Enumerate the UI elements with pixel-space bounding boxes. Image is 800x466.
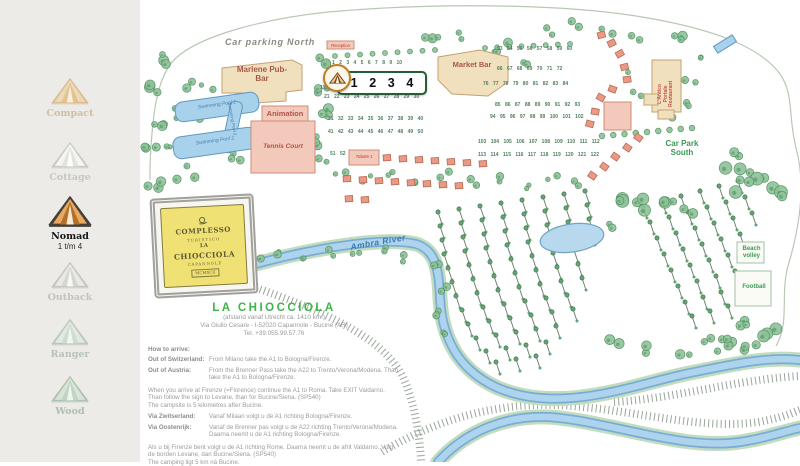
sidebar-item-nomad[interactable]: Nomad1 t/m 4 [0,194,140,251]
campsite-map-page: CompactCottageNomad1 t/m 4OutbackRangerW… [0,0,800,462]
sidebar-item-label: Compact [0,108,140,119]
directions-english-note: The campsite is 5 kilometres after Bucin… [148,402,400,410]
address-line: Via Giulio Cesare - I-52020 Capannole - … [148,322,400,330]
directions-english: Out of Switzerland:From Milano take the … [148,356,400,382]
swimming-pool-1 [174,91,260,122]
entrance-sign: COMPLESSO TURISTICO LA CHIOCCIOLA CAPANN… [149,193,258,298]
building-market-bar [438,50,508,96]
pitch-number-4: 4 [406,76,413,90]
directions-dutch-note: The camping ligt 5 km ná Bucine. [148,459,400,466]
how-to-arrive-heading: How to arrive: [148,346,400,353]
football-field [735,271,771,306]
sidebar-item-label: Outback [0,292,140,303]
tent-icon [50,260,90,291]
tent-marker-icon [329,72,346,84]
sidebar-item-wood[interactable]: Wood [0,374,140,417]
directions-dutch: Via Zwitserland:Vanaf Milaan volgt u de … [148,413,400,439]
distance-line: (afstand vanaf Utrecht ca. 1410 km.) [148,314,400,322]
tennis-court-area [251,121,315,173]
sidebar-item-compact[interactable]: Compact [0,76,140,119]
campsite-title: LA CHIOCCIOLA [148,302,400,314]
sidebar-item-sub: 1 t/m 4 [0,242,140,251]
building-sanitary [604,102,631,130]
tent-icon [50,140,90,171]
info-block: LA CHIOCCIOLA (afstand vanaf Utrecht ca.… [148,302,400,466]
tent-icon [47,194,93,230]
pitch-number-2: 2 [369,76,376,90]
tent-icon [50,374,90,405]
sidebar-item-label: Wood [0,406,140,417]
sidebar-item-label: Cottage [0,172,140,183]
direction-row: Via Zwitserland:Vanaf Milaan volgt u de … [148,413,400,421]
directions-english-para: When you arrive at Firenze (=Florence) c… [148,387,400,402]
building-toilette-1 [349,150,379,165]
sidebar-item-cottage[interactable]: Cottage [0,140,140,183]
sign-line-complesso: COMPLESSO [175,225,231,237]
sign-line-year: MCMXCII [191,268,220,277]
entrance-sign-plaque: COMPLESSO TURISTICO LA CHIOCCIOLA CAPANN… [160,204,248,288]
phone-line: Tel. +39.055.99.57.76 [148,330,400,338]
building-antico-annex-2 [658,110,674,119]
sidebar-item-label: Ranger [0,349,140,360]
pitch-number-3: 3 [388,76,395,90]
snail-icon [196,215,208,225]
sign-line-la: LA [200,243,208,249]
building-antico-annex-1 [644,94,658,105]
directions-dutch-para: Als u bij Firenze bent volgt u de A1 ric… [148,444,400,459]
pitch-fields-layer [436,179,758,376]
campsite-map: Car parking North Marlene Pub-Bar Market… [140,0,800,462]
direction-row: Via Oostenrijk:Vanaf de Brenner pas volg… [148,424,400,439]
tent-icon [50,317,90,348]
sidebar-item-outback[interactable]: Outback [0,260,140,303]
tent-icon [50,76,90,107]
sign-line-chiocciola: CHIOCCIOLA [174,249,236,261]
pitch-number-1: 1 [351,76,358,90]
swimming-pool-2 [172,126,258,159]
nomad-tent-map-marker [323,64,351,92]
direction-row: Out of Switzerland:From Milano take the … [148,356,400,364]
sign-line-capannole: CAPANNOLE [187,260,222,267]
sidebar-item-label: Nomad [0,231,140,242]
direction-row: Out of Austria:From the Brenner Pass tak… [148,367,400,382]
beach-volley-court [737,242,764,263]
sidebar-item-ranger[interactable]: Ranger [0,317,140,360]
building-animation [262,106,308,121]
accommodation-sidebar: CompactCottageNomad1 t/m 4OutbackRangerW… [0,0,140,462]
sign-line-turistico: TURISTICO [187,236,221,243]
building-reception [327,41,354,49]
